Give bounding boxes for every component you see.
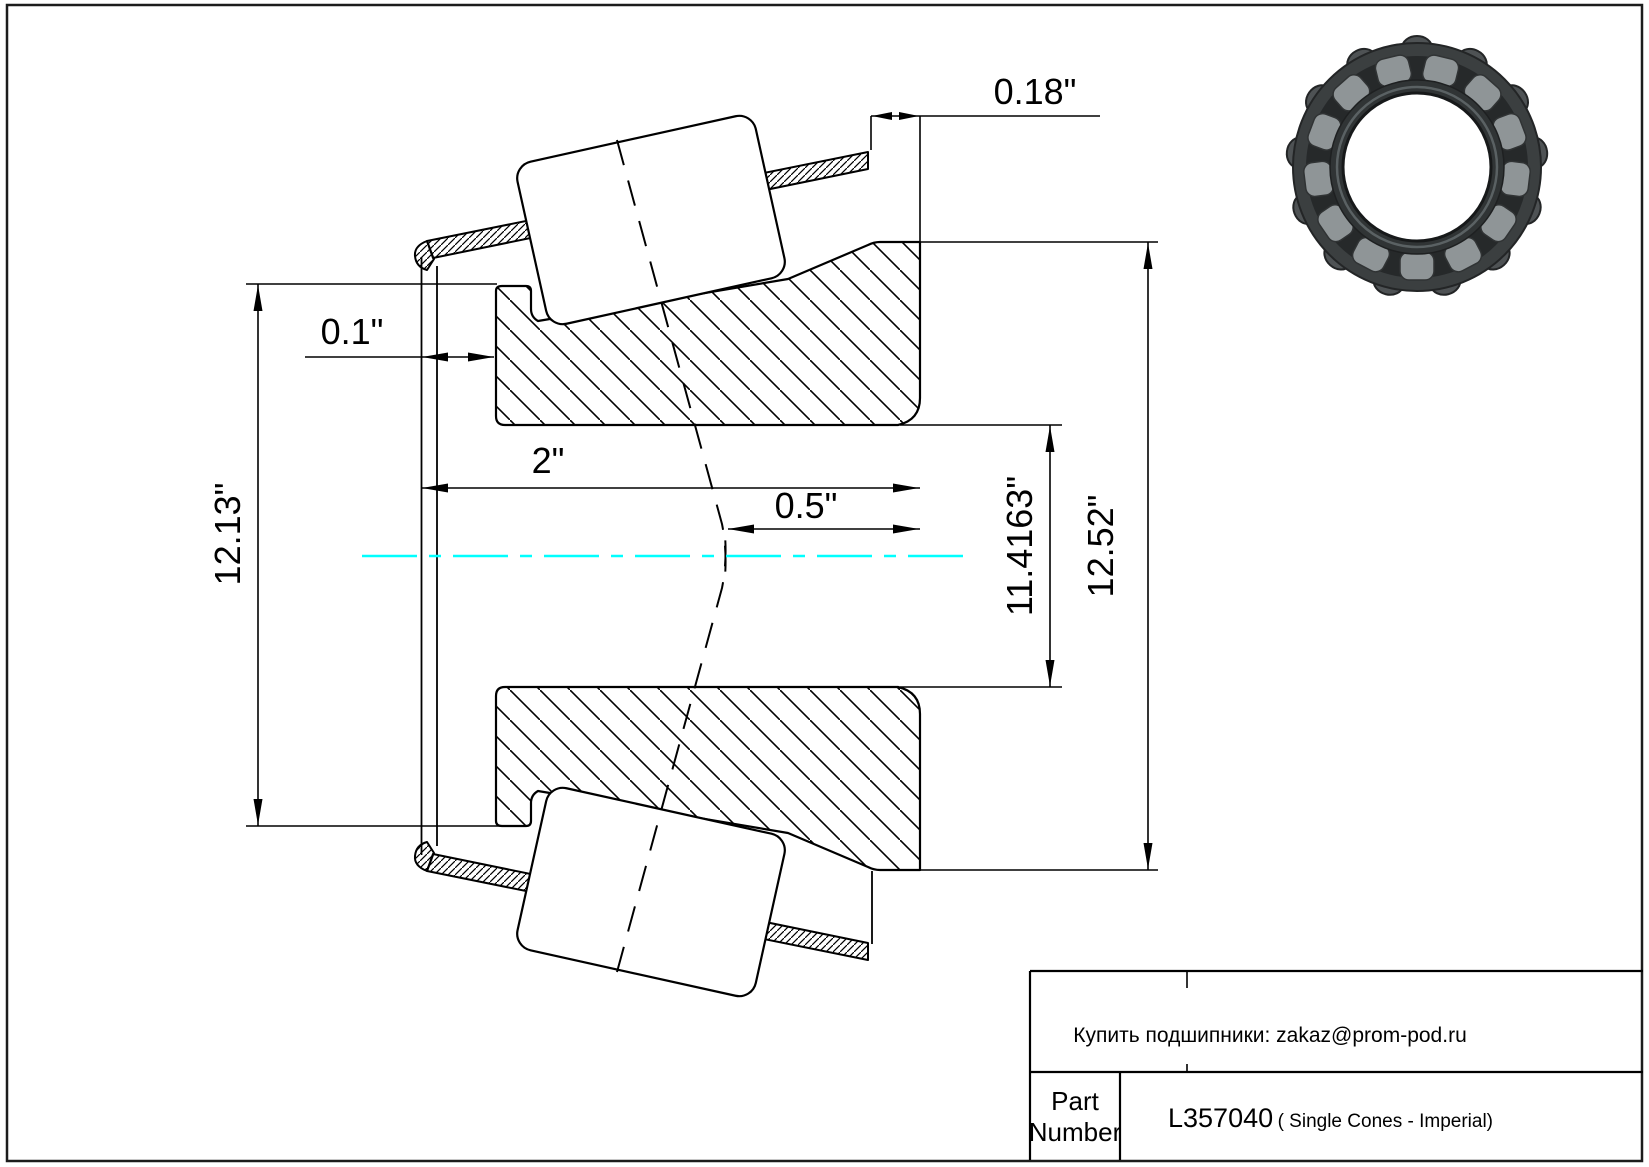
dimension-01: 0.1": [305, 311, 494, 362]
bearing-photo: [1285, 36, 1549, 298]
dim-label-01: 0.1": [321, 311, 384, 352]
contact-text: Купить подшипники: zakaz@prom-pod.ru: [1073, 1024, 1467, 1047]
dimension-05: 0.5": [728, 485, 920, 534]
dim-label-1252: 12.52": [1080, 495, 1121, 598]
part-label-line1: Part: [1051, 1086, 1099, 1116]
engineering-drawing-sheet: 0.18" 0.1" 2" 0.5": [0, 0, 1649, 1167]
dim-label-018: 0.18": [994, 71, 1077, 112]
dim-label-05: 0.5": [775, 485, 838, 526]
part-number-suffix: ( Single Cones - Imperial): [1278, 1111, 1493, 1132]
dimension-018: 0.18": [871, 71, 1100, 241]
cross-section-view: [362, 113, 963, 1000]
dim-label-2: 2": [532, 440, 565, 481]
bearing-bore: [1343, 93, 1491, 241]
part-label-line2: Number: [1029, 1117, 1122, 1147]
dim-label-1213: 12.13": [207, 483, 248, 586]
dimension-2: 2": [422, 440, 920, 493]
title-block: Купить подшипники: zakaz@prom-pod.ru Par…: [1029, 971, 1643, 1160]
dim-label-114163: 11.4163": [999, 476, 1040, 616]
part-number-value: L357040 ( Single Cones - Imperial): [1168, 1103, 1493, 1133]
part-number: L357040: [1168, 1103, 1273, 1133]
